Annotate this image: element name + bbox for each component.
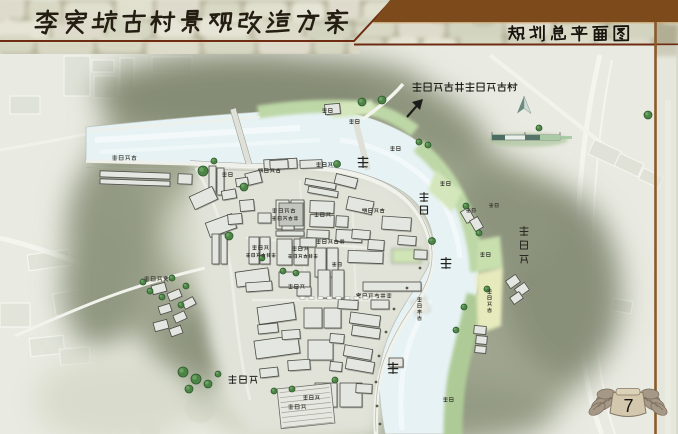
svg-text:7: 7 [623, 396, 633, 416]
